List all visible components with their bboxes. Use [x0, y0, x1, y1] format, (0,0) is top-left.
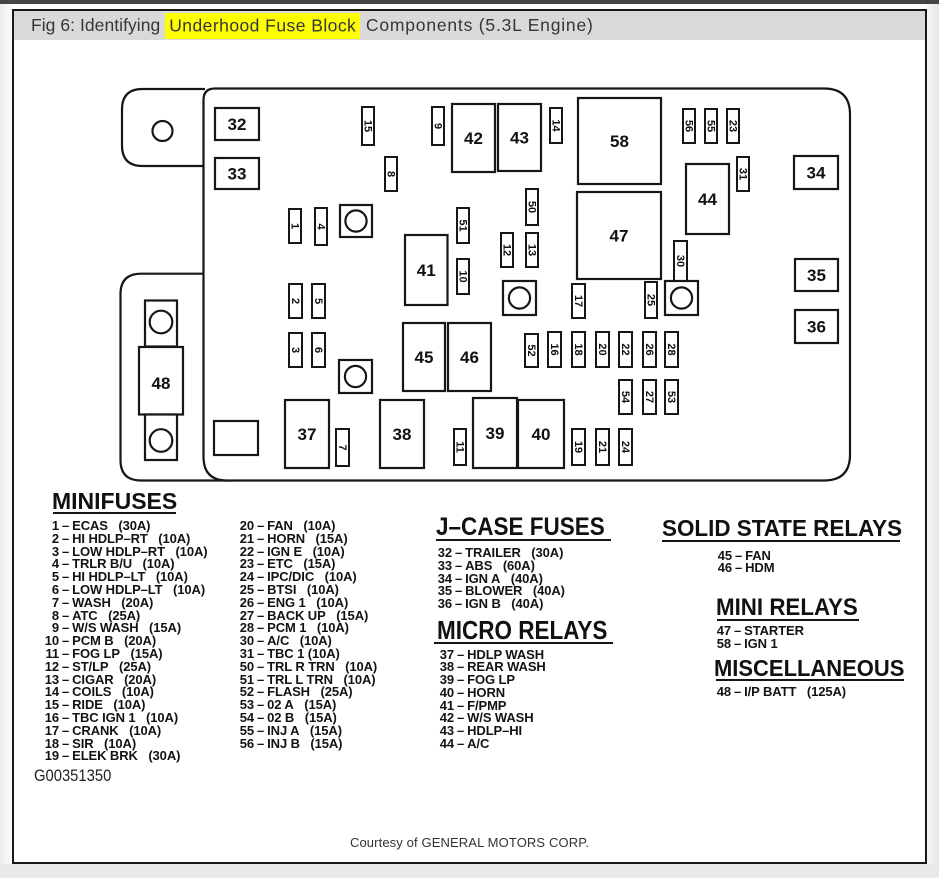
svg-text:58: 58	[610, 132, 629, 151]
svg-text:11: 11	[454, 441, 466, 453]
svg-text:51: 51	[457, 219, 469, 231]
svg-text:16: 16	[548, 343, 560, 355]
svg-text:25: 25	[645, 294, 657, 306]
svg-text:52: 52	[525, 344, 537, 356]
svg-text:23: 23	[727, 120, 739, 132]
svg-text:22: 22	[619, 343, 631, 355]
svg-text:5: 5	[312, 298, 324, 304]
svg-text:20: 20	[596, 343, 608, 355]
svg-text:27: 27	[643, 391, 655, 403]
svg-text:12: 12	[501, 244, 513, 256]
svg-text:13: 13	[526, 244, 538, 256]
svg-text:56: 56	[683, 120, 695, 132]
svg-text:31: 31	[737, 168, 749, 180]
svg-text:43: 43	[510, 129, 529, 148]
svg-text:44: 44	[698, 190, 717, 209]
svg-text:28: 28	[665, 343, 677, 355]
svg-text:39: 39	[486, 424, 505, 443]
svg-text:55: 55	[705, 120, 717, 132]
svg-text:54: 54	[619, 391, 631, 404]
svg-text:19: 19	[572, 441, 584, 453]
svg-text:48: 48	[152, 374, 171, 393]
svg-text:42: 42	[464, 129, 483, 148]
svg-text:41: 41	[417, 261, 436, 280]
svg-text:8: 8	[385, 171, 397, 177]
svg-text:1: 1	[289, 223, 301, 229]
svg-text:50: 50	[526, 201, 538, 213]
svg-text:46: 46	[460, 348, 479, 367]
svg-text:32: 32	[228, 115, 247, 134]
svg-text:3: 3	[289, 347, 301, 353]
svg-text:47: 47	[610, 227, 629, 246]
svg-text:45: 45	[415, 348, 434, 367]
svg-text:9: 9	[432, 123, 444, 129]
svg-text:30: 30	[674, 255, 686, 267]
svg-text:35: 35	[807, 266, 826, 285]
svg-text:15: 15	[362, 120, 374, 132]
svg-text:26: 26	[643, 343, 655, 355]
svg-text:21: 21	[596, 441, 608, 453]
svg-text:10: 10	[457, 270, 469, 282]
svg-text:14: 14	[550, 119, 562, 132]
svg-text:37: 37	[298, 425, 317, 444]
svg-text:7: 7	[336, 444, 348, 450]
svg-text:18: 18	[572, 343, 584, 355]
svg-text:6: 6	[312, 347, 324, 353]
svg-text:34: 34	[807, 164, 826, 183]
svg-text:53: 53	[665, 391, 677, 403]
svg-text:4: 4	[315, 223, 327, 230]
svg-text:40: 40	[532, 425, 551, 444]
svg-text:2: 2	[289, 298, 301, 304]
svg-text:36: 36	[807, 318, 826, 337]
svg-text:33: 33	[228, 165, 247, 184]
svg-text:38: 38	[393, 425, 412, 444]
svg-text:17: 17	[572, 295, 584, 307]
svg-text:24: 24	[619, 441, 631, 454]
